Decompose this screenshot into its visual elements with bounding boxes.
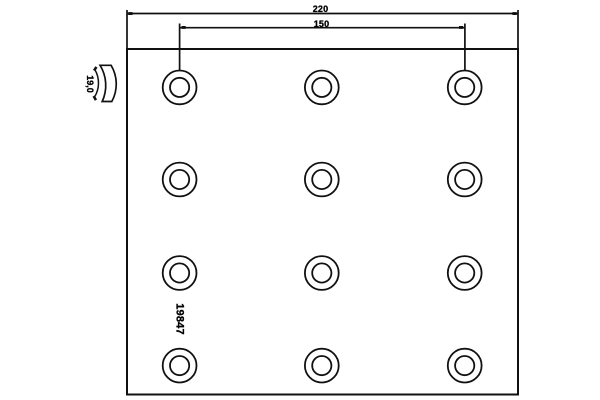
svg-text:19,0: 19,0 xyxy=(85,75,95,93)
svg-text:19847: 19847 xyxy=(174,303,186,335)
svg-text:150: 150 xyxy=(314,19,330,29)
svg-text:220: 220 xyxy=(313,4,329,14)
